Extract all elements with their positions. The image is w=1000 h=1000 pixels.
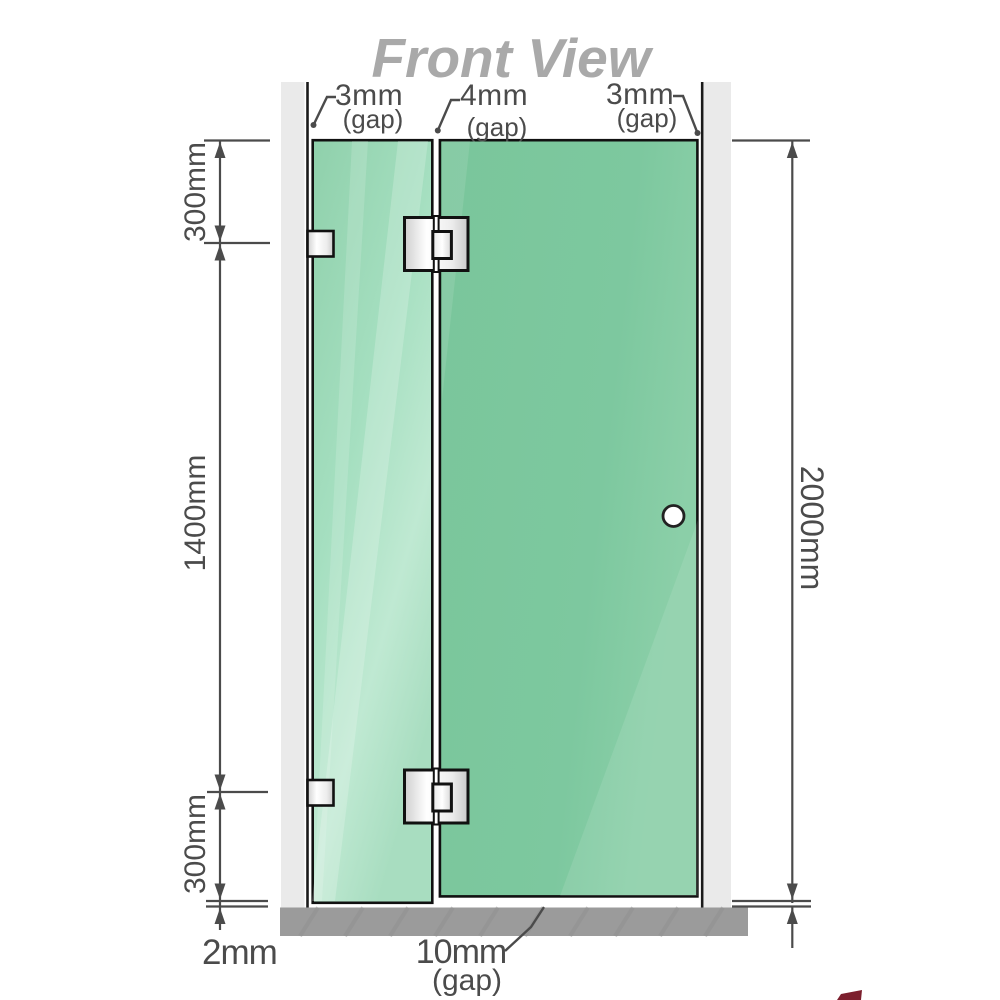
- svg-text:2000mm: 2000mm: [794, 466, 830, 591]
- svg-text:(gap): (gap): [343, 104, 404, 134]
- svg-text:2mm: 2mm: [202, 933, 277, 972]
- svg-text:1400mm: 1400mm: [179, 455, 212, 572]
- svg-text:300mm: 300mm: [179, 794, 212, 894]
- svg-text:(gap): (gap): [467, 112, 528, 142]
- svg-text:300mm: 300mm: [179, 142, 212, 242]
- svg-text:4mm: 4mm: [460, 79, 528, 112]
- svg-text:(gap): (gap): [617, 103, 678, 133]
- svg-text:(gap): (gap): [432, 964, 502, 997]
